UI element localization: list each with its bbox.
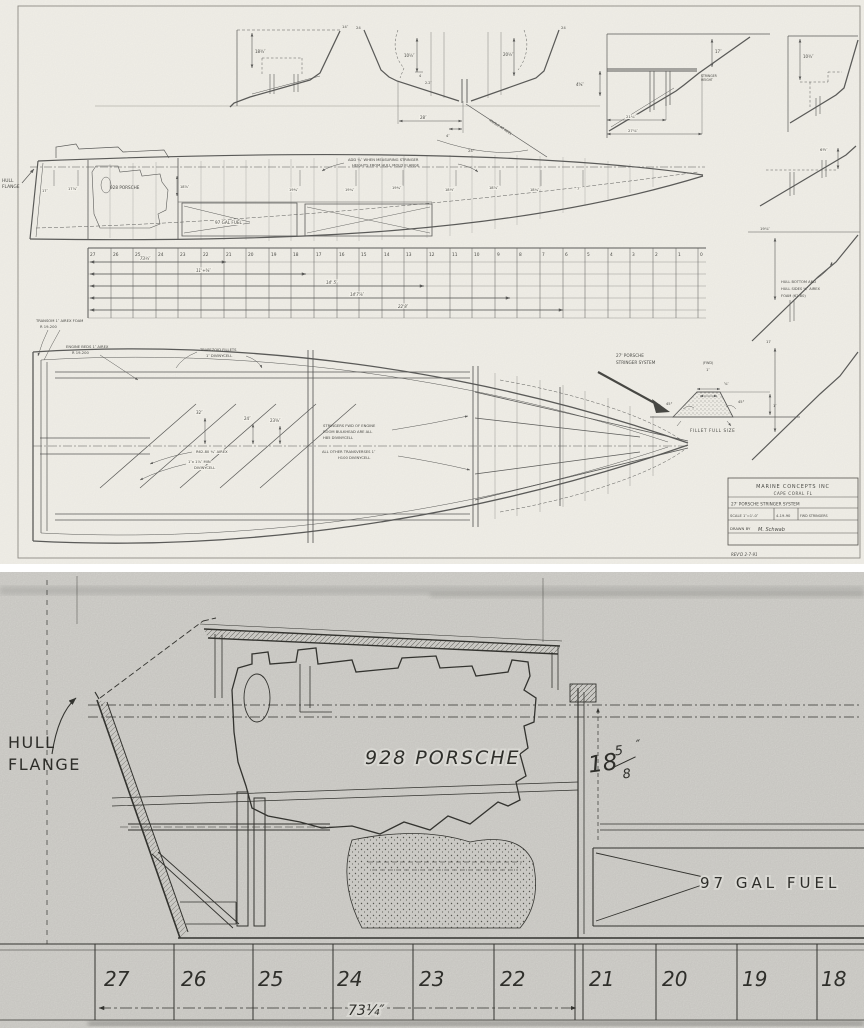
divinycell-note-1: 1″x 1⅞″ MIN (188, 460, 211, 464)
transverses-note-1: ALL OTHER TRANSVERSES 1″ (322, 450, 376, 454)
callout-line-1: 27' PORSCHE (616, 353, 644, 358)
section-b-width-dim: 28″ (420, 115, 427, 120)
fuel-big-label: 97 GAL FUEL (700, 874, 840, 892)
company-city: CAPE CORAL FL (774, 491, 813, 496)
fillet-mid-dim: ⅝″ (724, 382, 729, 386)
stringers-note-1: STRINGERS FWD OF ENGINE (323, 424, 376, 428)
fillet-top-dim: 1″ (706, 368, 710, 372)
height-dim-5: 18½″ (445, 188, 455, 192)
section-c-dim3: 21¼″ (626, 114, 637, 119)
fillet-caption: FILLET FULL SIZE (690, 428, 735, 433)
station-2: 2 (655, 252, 658, 258)
detail-station-26: 26 (181, 967, 206, 991)
stringer-measure-note-1: ADD ¾″ WHEN MEASURING STRINGER (348, 158, 419, 162)
divinycell-note-2: DIVINYCELL (194, 466, 216, 470)
detail-station-22: 22 (500, 967, 525, 991)
stringers-note-3: H85 DIVINYCELL (323, 436, 354, 440)
section-b-dim4: 20½″ (503, 52, 514, 57)
station-9: 9 (497, 252, 500, 258)
grid-dim-0: 73¼″ (140, 256, 151, 261)
height-dim-0: 17″ (42, 189, 49, 193)
hull-flange-label-1: HULL (2, 178, 14, 184)
airex-note: R62-80 ¾″ AIREX (196, 450, 228, 454)
grid-dim-4: 22'8″ (398, 304, 409, 309)
drawn-by-label: DRAWN BY (730, 526, 751, 531)
station-7: 7 (542, 252, 545, 258)
station-6: 6 (565, 252, 568, 258)
height-dim-2: 19¾″ (289, 188, 299, 192)
revision-note: REV'D 2-7-91 (731, 552, 758, 557)
sheet-gap (0, 564, 864, 572)
engine-beds-note-1: ENGINE BEDS 1″ AIREX (66, 345, 109, 349)
detail-station-18: 18 (821, 967, 846, 991)
section-c-dim4: 27⅞″ (628, 128, 639, 133)
station-3: 3 (632, 252, 635, 258)
section-a-tip-dim: 14″ (342, 24, 349, 29)
drawn-by-signature: M. Schwab (758, 527, 785, 533)
bottom-edge-smudge (88, 1021, 864, 1026)
grid-dim-2: 14' 5″ (326, 280, 338, 285)
station-8: 8 (519, 252, 522, 258)
hull-laminate-note-1: HULL BOTTOM AND (781, 280, 816, 284)
detail-station-19: 19 (742, 967, 767, 991)
drawing-ref: FWD STRINGERS (800, 514, 828, 518)
transverses-note-2: H100 DIVINYCELL (338, 456, 371, 460)
station-0: 0 (700, 252, 703, 258)
section-a-height-dim: 18¾″ (255, 49, 266, 54)
drawing-date: 4-19-90 (776, 514, 791, 518)
hull-flange-label-2: FLANGE (2, 184, 20, 190)
transom-note-1: TRANSOM 1″ AIREX FOAM (35, 319, 83, 323)
hull-laminate-note-2: HULL SIDES ¾″ AIREX (781, 287, 821, 291)
station-1: 1 (678, 252, 681, 258)
stringers-note-2: ROOM BULKHEAD ARE ALL (323, 430, 373, 434)
drawing-title: 27' PORSCHE STRINGER SYSTEM (731, 502, 800, 507)
station-14: 14 (384, 252, 390, 258)
height-dim-3: 19¼″ (345, 188, 355, 192)
blueprint-sheet-full-plan: 18¾″ 14″ 24 24 10½″ 4 2.2″ 20½″ 28″ 4″ A… (0, 0, 864, 564)
station-12: 12 (429, 252, 435, 258)
station-11: 11 (452, 252, 458, 258)
scanned-boat-drawing-page: 18¾″ 14″ 24 24 10½″ 4 2.2″ 20½″ 28″ 4″ A… (0, 0, 864, 1028)
detail-station-27: 27 (104, 967, 130, 991)
station-16: 16 (339, 252, 345, 258)
plan-dim-32: 32″ (196, 410, 203, 415)
stringer-height-note-2: HEIGHT (701, 78, 713, 82)
grid-dim-1: 11'+⅝″ (196, 268, 211, 273)
section-d-dim: 10¾″ (803, 54, 814, 59)
trapezoid-fillets-note-1: TRAPEZOID FILLETS (199, 348, 237, 352)
station-23: 23 (180, 252, 186, 258)
station-24: 24 (158, 252, 164, 258)
fillet-left-angle: 45° (666, 402, 673, 406)
station-13: 13 (406, 252, 412, 258)
section-b-dim2: 4 (419, 74, 421, 78)
top-smudge-band-right (430, 592, 864, 598)
section-c-dim2: 17″ (715, 49, 722, 54)
engine-big-label: 928 PORSCHE (365, 747, 521, 769)
stringer-measure-note-2: HEIGHTS FROM HULL MOLD FLANGE (352, 164, 420, 168)
profile-engine-height-dim: 18⅝″ (180, 185, 190, 189)
detail-station-24: 24 (337, 967, 362, 991)
detail-station-25: 25 (258, 967, 283, 991)
sheet1-paper-grain (0, 0, 864, 564)
right-strip-dim-1: 6½″ (820, 147, 828, 152)
fillet-right-angle: 45° (738, 400, 745, 404)
engine-beds-note-2: R 19-200 (72, 351, 89, 355)
section-c-dim1: 4⅝″ (576, 82, 584, 87)
section-b-left-tip: 24 (356, 25, 361, 30)
callout-line-2: STRINGER SYSTEM (616, 360, 656, 365)
width-dim-label: 73¼″ (348, 1003, 385, 1019)
company-name: MARINE CONCEPTS INC (756, 484, 830, 490)
station-10: 10 (474, 252, 480, 258)
trapezoid-fillets-note-2: 1″ DIVINYCELL (206, 354, 233, 358)
hull-flange-big-label-1: HULL (8, 733, 56, 752)
station-21: 21 (226, 252, 232, 258)
right-strip-dim-2: 19⅞″ (760, 226, 771, 231)
angle-at-keel-value: 24° (468, 148, 475, 153)
station-27: 27 (90, 252, 96, 258)
height-dim-6: 18⅝″ (489, 186, 499, 190)
station-15: 15 (361, 252, 367, 258)
profile-fuel-label: 97 GAL FUEL (215, 220, 243, 225)
profile-engine-label: 928 PORSCHE (110, 185, 140, 190)
height-dim-4: 19¾″ (392, 186, 402, 190)
bulkhead-flange-bracket (570, 684, 596, 702)
station-19: 19 (271, 252, 277, 258)
plan-dim-24: 24″ (244, 416, 251, 421)
station-5: 5 (587, 252, 590, 258)
section-b-dim3: 2.2″ (425, 81, 432, 85)
height-dim-1: 17⅞″ (68, 187, 78, 191)
scale-value: SCALE 1″=1'-0″ (730, 514, 759, 518)
height-dim-7: 18¼″ (530, 188, 540, 192)
station-18: 18 (293, 252, 299, 258)
transom-note-2: R 19-200 (40, 325, 57, 329)
detail-station-20: 20 (662, 967, 687, 991)
station-20: 20 (248, 252, 254, 258)
section-b-dim1: 10½″ (404, 53, 415, 58)
detail-station-21: 21 (589, 967, 614, 991)
engine-compartment-detail-sheet: HULL FLANGE 928 PORSCHE 18 5 8 ″ 97 GAL … (0, 572, 864, 1028)
section-b-right-tip: 24 (561, 25, 566, 30)
hull-laminate-note-3: FOAM (62-80) (781, 294, 806, 298)
station-22: 22 (203, 252, 209, 258)
grid-dim-3: 14'7⅞″ (350, 292, 365, 297)
station-4: 4 (610, 252, 613, 258)
detail-station-23: 23 (419, 967, 444, 991)
fillet-fwd-label: (FWD) (703, 361, 714, 365)
right-strip-dim-3: 17 (766, 339, 771, 344)
bilge-stipple-area (347, 833, 536, 928)
plan-dim-23: 23⅝″ (270, 418, 281, 423)
station-26: 26 (113, 252, 119, 258)
station-17: 17 (316, 252, 322, 258)
hull-flange-big-label-2: FLANGE (8, 755, 81, 774)
